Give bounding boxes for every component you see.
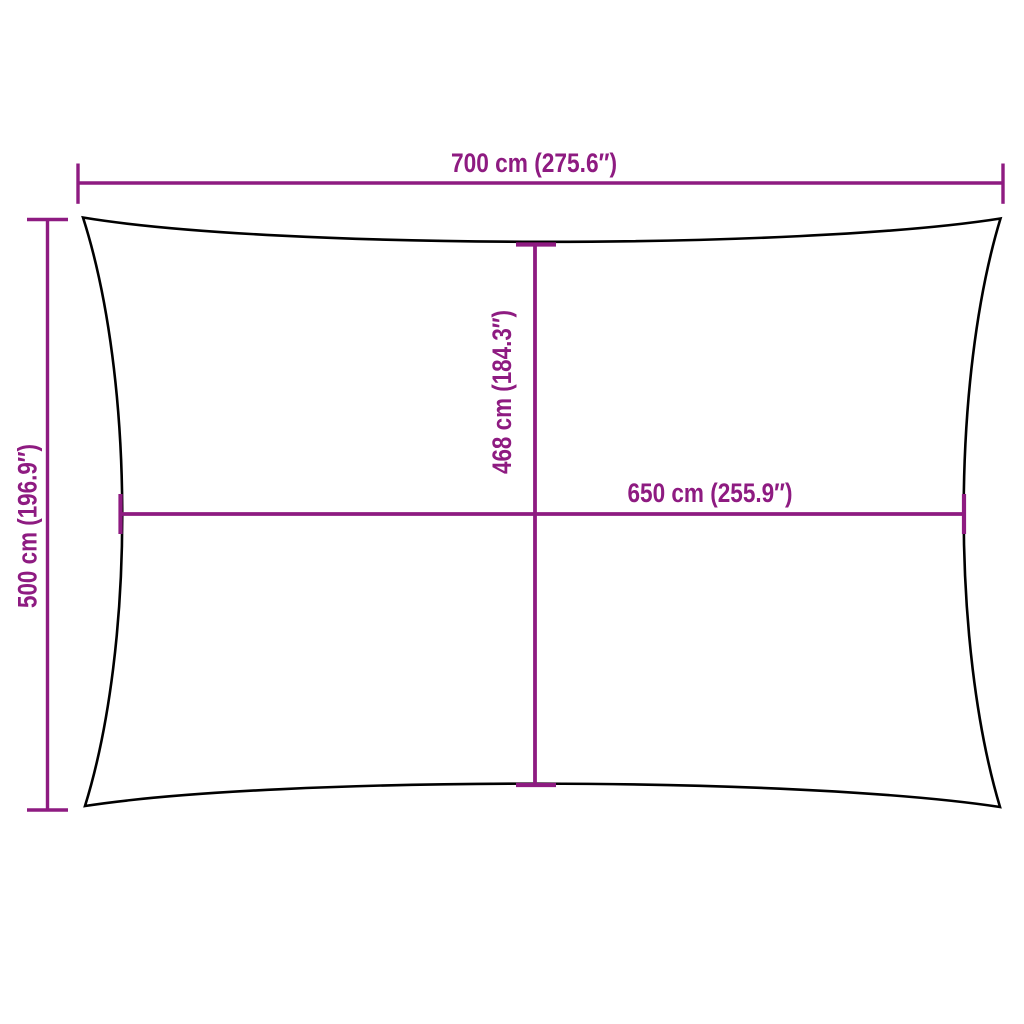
svg-text:468 cm (184.3″): 468 cm (184.3″) <box>487 310 517 474</box>
svg-text:500 cm (196.9″): 500 cm (196.9″) <box>13 444 43 608</box>
svg-text:700 cm (275.6″): 700 cm (275.6″) <box>451 148 617 178</box>
svg-text:650 cm (255.9″): 650 cm (255.9″) <box>628 478 793 508</box>
